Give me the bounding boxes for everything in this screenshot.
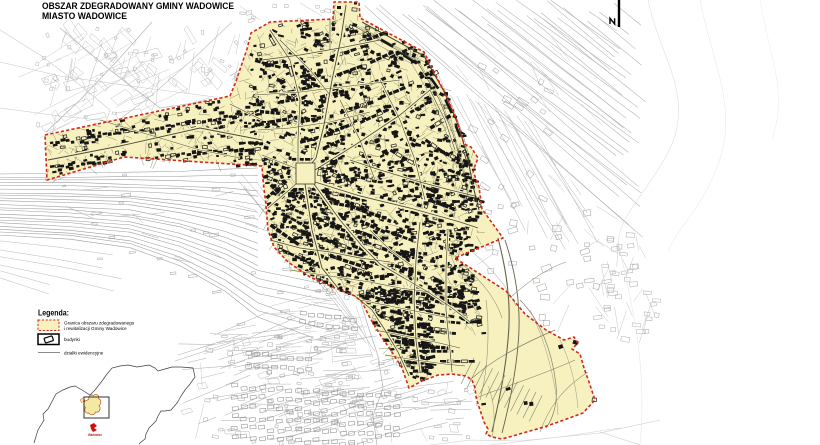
svg-text:MIASTO WADOWICE: MIASTO WADOWICE xyxy=(42,11,127,21)
svg-text:działki ewidencyjne: działki ewidencyjne xyxy=(64,351,104,356)
svg-text:Legenda:: Legenda: xyxy=(38,309,69,318)
svg-text:Wadowice: Wadowice xyxy=(88,433,102,437)
svg-text:budynki: budynki xyxy=(64,337,80,342)
svg-text:Granica obszaru zdegradowanego: Granica obszaru zdegradowanego xyxy=(64,321,135,326)
svg-text:OBSZAR ZDEGRADOWANY GMINY WADO: OBSZAR ZDEGRADOWANY GMINY WADOWICE xyxy=(42,1,234,11)
svg-text:i rewitalizacji Gminy Wadowice: i rewitalizacji Gminy Wadowice xyxy=(64,326,127,331)
